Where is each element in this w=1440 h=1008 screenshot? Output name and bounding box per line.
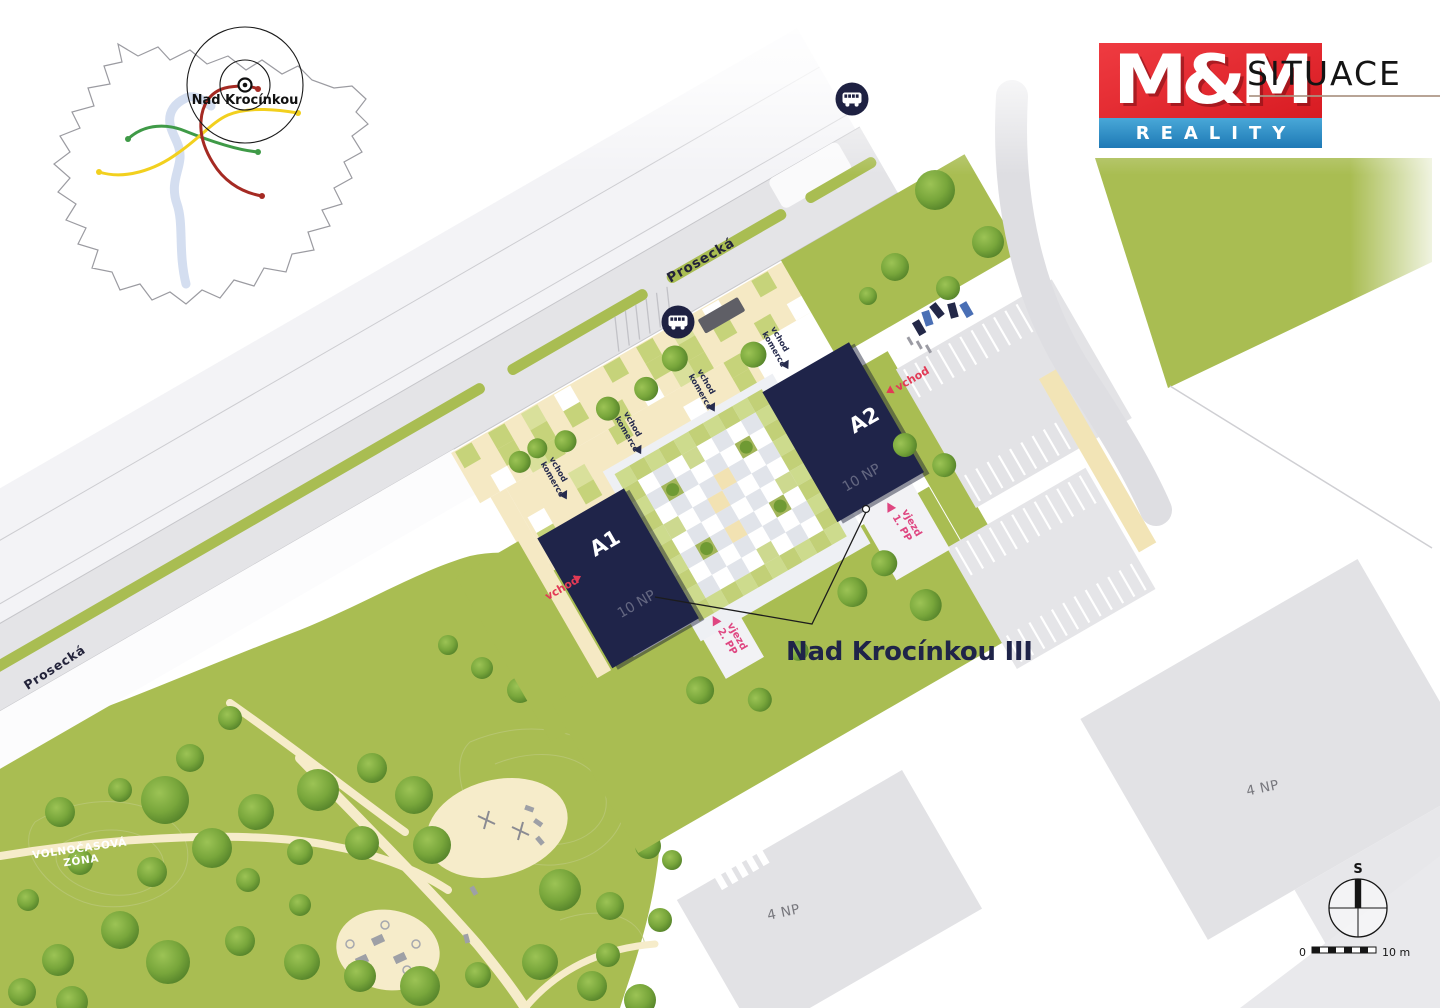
scale-segment xyxy=(1360,947,1368,953)
tree-icon xyxy=(146,940,190,984)
prague-minimap-part xyxy=(125,136,131,142)
scale-bar-part xyxy=(1312,947,1376,953)
tree-icon xyxy=(42,944,74,976)
scale-segment xyxy=(1336,947,1344,953)
project-title: Nad Krocínkou III xyxy=(786,637,1033,667)
tree-icon xyxy=(357,753,387,783)
tree-icon xyxy=(344,960,376,992)
logo-reality-text: REALITY xyxy=(1136,123,1297,144)
scale-segment xyxy=(1344,947,1352,953)
tree-icon xyxy=(400,966,440,1006)
tree-icon xyxy=(218,706,242,730)
tree-icon xyxy=(438,635,458,655)
tree-icon xyxy=(859,287,877,305)
fade-right xyxy=(1350,140,1440,460)
scale-segment xyxy=(1328,947,1336,953)
site-plan-canvas: VOLNOČASOVÁ ZÓNA xyxy=(0,0,1440,1008)
scale-segment xyxy=(1320,947,1328,953)
tree-icon xyxy=(289,894,311,916)
bus-stop-icon xyxy=(662,306,695,339)
page-title: SITUACE xyxy=(1247,54,1402,93)
prague-minimap-part xyxy=(96,169,102,175)
tree-icon xyxy=(936,276,960,300)
tree-icon xyxy=(577,971,607,1001)
tree-icon xyxy=(297,769,339,811)
tree-icon xyxy=(176,744,204,772)
tree-icon xyxy=(192,828,232,868)
tree-icon xyxy=(413,826,451,864)
scale-segment xyxy=(1352,947,1360,953)
tree-icon xyxy=(141,776,189,824)
tree-icon xyxy=(284,944,320,980)
tree-icon xyxy=(471,657,493,679)
scale-segment xyxy=(1312,947,1320,953)
tree-icon xyxy=(972,226,1004,258)
tree-icon xyxy=(17,889,39,911)
tree-icon xyxy=(108,778,132,802)
tree-icon xyxy=(287,839,313,865)
tree-icon xyxy=(648,908,672,932)
minimap-location-label: Nad Krocínkou xyxy=(192,93,299,108)
title-rule xyxy=(1249,95,1440,97)
prague-minimap-part xyxy=(255,149,261,155)
tree-icon xyxy=(8,978,36,1006)
tree-icon xyxy=(345,826,379,860)
tree-icon xyxy=(596,943,620,967)
prague-minimap-part xyxy=(255,86,261,92)
tree-icon xyxy=(45,797,75,827)
bus-stop-icon xyxy=(836,83,869,116)
scale-zero: 0 xyxy=(1299,946,1306,959)
tree-icon xyxy=(662,850,682,870)
tree-icon xyxy=(522,944,558,980)
tree-icon xyxy=(238,794,274,830)
tree-icon xyxy=(881,253,909,281)
leader-dot xyxy=(863,506,870,513)
tree-icon xyxy=(236,868,260,892)
tree-icon xyxy=(539,869,581,911)
prague-minimap-part xyxy=(243,83,248,88)
tree-icon xyxy=(596,892,624,920)
tree-icon xyxy=(465,962,491,988)
tree-icon xyxy=(395,776,433,814)
tree-icon xyxy=(137,857,167,887)
mm-reality-logo-bar: REALITY xyxy=(1099,118,1322,148)
scale-segment xyxy=(1368,947,1376,953)
tree-icon xyxy=(915,170,955,210)
compass-north-label: S xyxy=(1353,862,1362,877)
tree-icon xyxy=(101,911,139,949)
compass-icon-part xyxy=(1355,879,1361,908)
scale-max: 10 m xyxy=(1382,946,1410,959)
prague-minimap-part xyxy=(259,193,265,199)
tree-icon xyxy=(225,926,255,956)
